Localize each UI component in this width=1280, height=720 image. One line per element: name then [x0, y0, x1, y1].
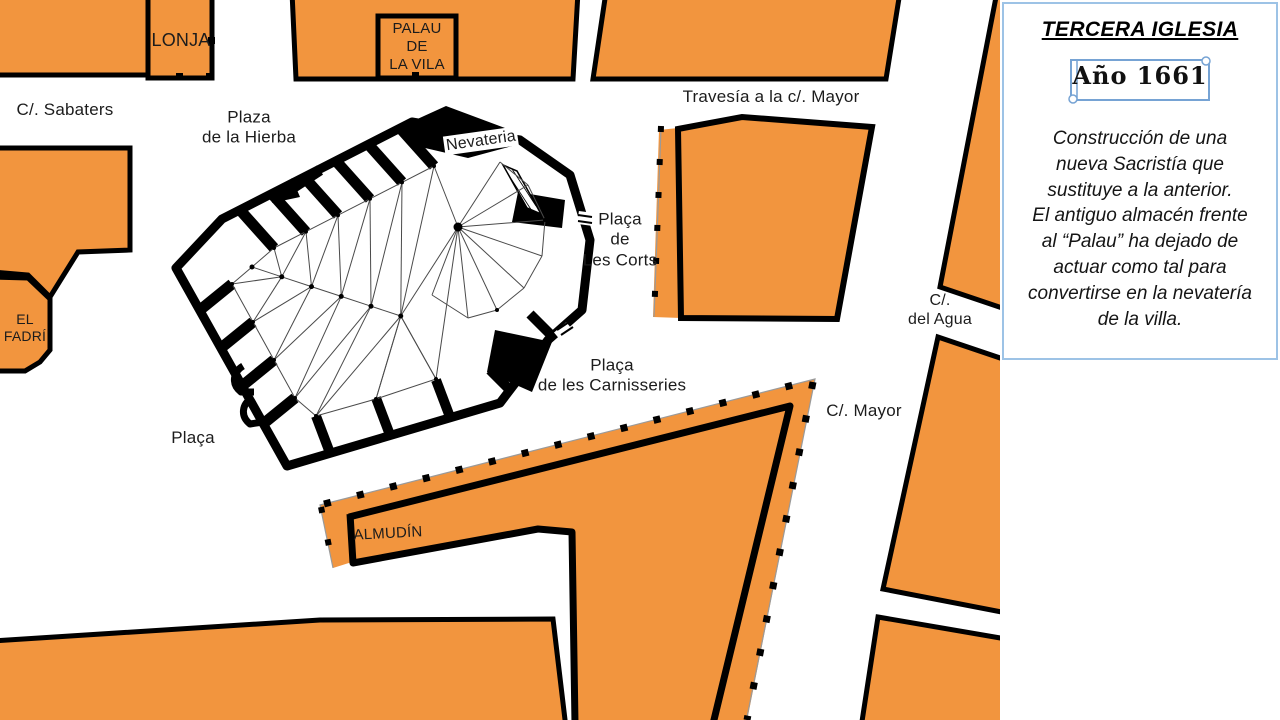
building-east-sliver — [940, 0, 1000, 312]
slide: C/. SabatersLONJAPALAU DE LA VILAPlaza d… — [0, 0, 1280, 720]
building-del-agua — [883, 337, 1000, 614]
lonja-door-mark — [206, 73, 213, 80]
map-label-agua: C/. del Agua — [908, 291, 972, 329]
map-label-mayor: C/. Mayor — [826, 401, 901, 421]
historic-town-map — [0, 0, 1000, 720]
panel-title: TERCERA IGLESIA — [1004, 18, 1276, 42]
map-label-fadri: EL FADRÍ — [4, 311, 46, 345]
building-top-left — [0, 0, 148, 75]
map-label-placa: Plaça — [171, 428, 215, 448]
map-label-lescorts: Plaça de Les Corts — [583, 209, 658, 270]
lonja-door-mark — [176, 73, 183, 80]
building-top-right — [593, 0, 900, 79]
building-lescorts-block — [678, 117, 872, 319]
info-panel: TERCERA IGLESIA Año 1661 Construcción de… — [1002, 2, 1278, 360]
church-plan — [176, 106, 595, 466]
map-label-carnisseries: Plaça de les Carnisseries — [538, 356, 686, 397]
year-scroll: Año 1661 — [1055, 54, 1225, 108]
map-label-sabaters: C/. Sabaters — [17, 100, 114, 120]
building-bottom-right — [861, 617, 1000, 720]
map-label-hierba: Plaza de la Hierba — [202, 108, 296, 149]
building-bottom-left — [0, 619, 566, 720]
year-label: Año 1661 — [1055, 61, 1225, 90]
map-label-palau: PALAU DE LA VILA — [389, 20, 445, 74]
panel-description: Construcción de una nueva Sacristía que … — [1012, 126, 1268, 333]
building-left-middle — [0, 148, 130, 297]
map-label-almudin: ALMUDÍN — [353, 523, 423, 545]
map-label-lonja: LONJA — [151, 30, 210, 52]
map-label-travesia: Travesía a la c/. Mayor — [683, 87, 860, 107]
